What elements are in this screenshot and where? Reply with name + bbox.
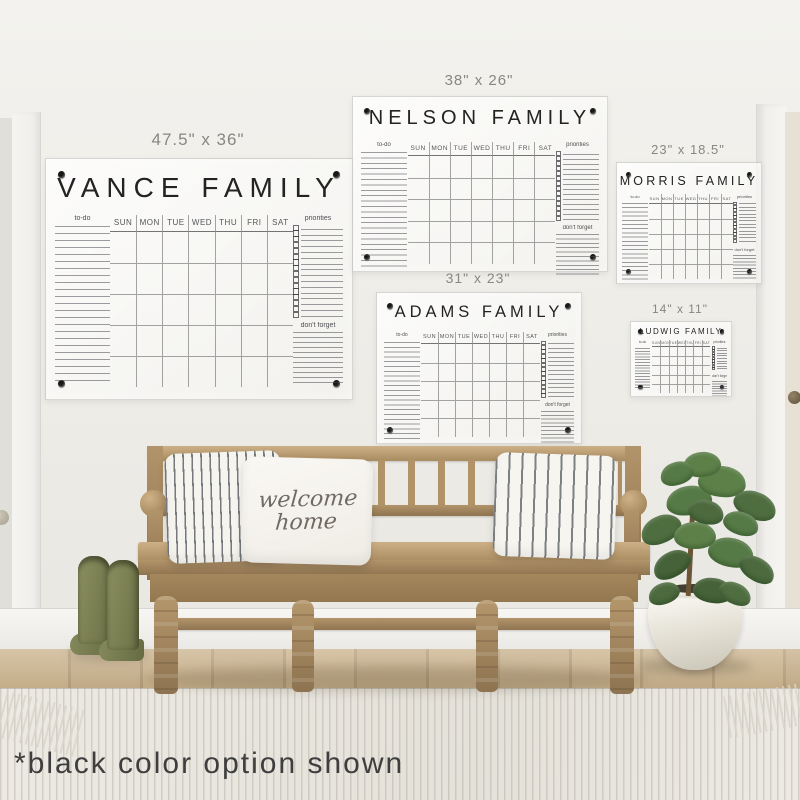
checklist-line xyxy=(301,304,343,305)
date-cell xyxy=(660,365,668,374)
date-cell xyxy=(513,178,534,200)
day-label: MON xyxy=(660,340,668,347)
date-cell xyxy=(492,178,513,200)
date-cell xyxy=(489,418,506,437)
date-cell xyxy=(450,199,471,221)
checkbox-icon xyxy=(733,239,737,243)
checklist-line xyxy=(548,383,574,384)
day-label: FRI xyxy=(241,215,267,232)
date-cell xyxy=(506,418,523,437)
calendar-title: MORRIS FAMILY xyxy=(617,174,761,188)
date-cell xyxy=(408,221,429,243)
date-cell xyxy=(450,221,471,243)
day-label: WED xyxy=(677,340,685,347)
checklist-line xyxy=(563,179,599,180)
date-cell xyxy=(693,347,701,356)
checklist-line xyxy=(548,387,574,388)
day-label: FRI xyxy=(506,332,523,344)
checklist-line xyxy=(548,365,574,366)
date-cell xyxy=(685,356,693,365)
date-cell xyxy=(162,356,188,387)
date-cell xyxy=(660,375,668,384)
dont-forget-label: don't forget xyxy=(712,374,727,378)
acrylic-panel: NELSON FAMILYto-doSUNMONTUEWEDTHUFRISATp… xyxy=(352,96,608,272)
date-cell xyxy=(697,234,709,249)
boot-left-shaft xyxy=(78,556,110,644)
checklist-line xyxy=(301,310,343,311)
checklist-line xyxy=(563,159,599,160)
date-cell xyxy=(429,221,450,243)
day-label: TUE xyxy=(673,194,685,204)
todo-lines xyxy=(635,348,650,390)
checklist-line xyxy=(563,204,599,205)
date-cells xyxy=(652,347,710,393)
day-label: SAT xyxy=(702,340,710,347)
checklist-line xyxy=(739,210,756,211)
todo-column: to-do xyxy=(635,340,650,396)
date-cell xyxy=(652,356,660,365)
date-cell xyxy=(649,264,661,279)
date-cell xyxy=(489,400,506,419)
todo-column: to-do xyxy=(361,142,407,278)
checklist-line xyxy=(548,348,574,349)
date-cell xyxy=(513,156,534,178)
date-cell xyxy=(438,400,455,419)
checklist-line xyxy=(739,227,756,228)
month-grid: SUNMONTUEWEDTHUFRISAT xyxy=(649,194,733,283)
checklist-line xyxy=(548,392,574,393)
date-cell xyxy=(523,344,540,363)
date-cell xyxy=(673,204,685,219)
date-cell xyxy=(649,234,661,249)
date-cell xyxy=(702,356,710,365)
date-cell xyxy=(506,400,523,419)
checklist-line xyxy=(717,350,727,351)
date-cell xyxy=(110,232,136,263)
checklist-line xyxy=(548,374,574,375)
todo-lines xyxy=(55,226,110,387)
checkbox-icon xyxy=(556,216,561,221)
date-cell xyxy=(513,199,534,221)
todo-column: to-do xyxy=(384,332,420,445)
acrylic-panel: VANCE FAMILYto-doSUNMONTUEWEDTHUFRISATpr… xyxy=(45,158,353,400)
date-cell xyxy=(162,294,188,325)
day-label: THU xyxy=(492,142,513,156)
date-cell xyxy=(489,363,506,382)
date-cell xyxy=(669,347,677,356)
checklist-line xyxy=(548,357,574,358)
priorities-column: prioritiesdon't forget xyxy=(712,340,727,396)
date-cell xyxy=(267,294,293,325)
date-cell xyxy=(215,356,241,387)
day-label: FRI xyxy=(709,194,721,204)
date-cell xyxy=(429,242,450,264)
day-header-row: SUNMONTUEWEDTHUFRISAT xyxy=(652,340,710,347)
day-label: SAT xyxy=(523,332,540,344)
checklist-line xyxy=(563,199,599,200)
date-cell xyxy=(429,178,450,200)
date-cell xyxy=(110,263,136,294)
date-cell xyxy=(523,418,540,437)
date-cell xyxy=(136,232,162,263)
pillow-text-line1: welcome xyxy=(258,487,359,513)
checklist-line xyxy=(301,264,343,265)
date-cell xyxy=(421,363,438,382)
date-cell xyxy=(267,356,293,387)
calendar-content: to-doSUNMONTUEWEDTHUFRISATprioritiesdon'… xyxy=(384,332,574,445)
date-cell xyxy=(450,178,471,200)
date-cell xyxy=(702,375,710,384)
date-cell xyxy=(523,381,540,400)
date-cell xyxy=(702,384,710,393)
date-cell xyxy=(267,263,293,294)
bench-leg xyxy=(292,600,314,692)
checklist-line xyxy=(563,214,599,215)
checklist-line xyxy=(563,164,599,165)
checklist-line xyxy=(301,269,343,270)
checklist-line xyxy=(717,366,727,367)
calendar-size-label: 31" x 23" xyxy=(376,270,580,286)
priorities-label: priorities xyxy=(556,142,599,148)
day-label: TUE xyxy=(450,142,471,156)
date-cell xyxy=(697,249,709,264)
checklist-row xyxy=(712,368,727,371)
date-cell xyxy=(673,249,685,264)
date-cell xyxy=(649,219,661,234)
pillow-text-line2: home xyxy=(274,510,337,535)
date-cell xyxy=(721,249,733,264)
day-label: THU xyxy=(489,332,506,344)
day-label: FRI xyxy=(693,340,701,347)
date-cell xyxy=(661,249,673,264)
checklist-line xyxy=(301,246,343,247)
date-cell xyxy=(438,344,455,363)
checklist-line xyxy=(739,231,756,232)
date-cell xyxy=(188,356,214,387)
date-cell xyxy=(110,294,136,325)
checklist-line xyxy=(563,169,599,170)
date-cell xyxy=(721,204,733,219)
date-cell xyxy=(685,264,697,279)
dont-forget-lines xyxy=(733,255,756,281)
date-cell xyxy=(534,178,555,200)
month-grid: SUNMONTUEWEDTHUFRISAT xyxy=(421,332,540,445)
day-label: SAT xyxy=(721,194,733,204)
date-cell xyxy=(669,356,677,365)
day-label: MON xyxy=(661,194,673,204)
checklist-line xyxy=(548,361,574,362)
checklist-line xyxy=(548,370,574,371)
date-cell xyxy=(709,219,721,234)
date-cell xyxy=(267,325,293,356)
checklist-line xyxy=(301,298,343,299)
date-cell xyxy=(523,400,540,419)
date-cell xyxy=(697,219,709,234)
date-cell xyxy=(669,365,677,374)
checklist-line xyxy=(548,379,574,380)
date-cell xyxy=(506,381,523,400)
todo-label: to-do xyxy=(361,142,407,148)
day-label: THU xyxy=(215,215,241,232)
checkbox-icon xyxy=(541,393,546,398)
date-cell xyxy=(709,204,721,219)
date-cell xyxy=(472,344,489,363)
todo-label: to-do xyxy=(635,340,650,344)
checklist-line xyxy=(739,241,756,242)
checklist-line xyxy=(301,287,343,288)
date-cell xyxy=(450,156,471,178)
date-cell xyxy=(421,418,438,437)
date-cell xyxy=(472,363,489,382)
priorities-column: prioritiesdon't forget xyxy=(293,215,343,387)
calendar-title: NELSON FAMILY xyxy=(353,107,607,130)
date-cell xyxy=(215,232,241,263)
date-cell xyxy=(669,375,677,384)
day-header-row: SUNMONTUEWEDTHUFRISAT xyxy=(408,142,556,156)
day-label: SUN xyxy=(649,194,661,204)
date-cell xyxy=(685,384,693,393)
calendar-nelson: 38" x 26"NELSON FAMILYto-doSUNMONTUEWEDT… xyxy=(352,96,606,272)
date-cell xyxy=(162,325,188,356)
date-cell xyxy=(429,156,450,178)
day-label: FRI xyxy=(513,142,534,156)
checklist-line xyxy=(739,224,756,225)
date-cell xyxy=(421,400,438,419)
date-cell xyxy=(471,221,492,243)
date-cells xyxy=(408,156,556,264)
checklist-line xyxy=(548,352,574,353)
date-cell xyxy=(702,365,710,374)
date-cell xyxy=(188,232,214,263)
date-cell xyxy=(677,375,685,384)
calendar-content: to-doSUNMONTUEWEDTHUFRISATprioritiesdon'… xyxy=(635,340,727,396)
date-cell xyxy=(506,344,523,363)
date-cell xyxy=(455,381,472,400)
bench-apron xyxy=(150,574,638,602)
date-cell xyxy=(267,232,293,263)
date-cell xyxy=(534,221,555,243)
date-cell xyxy=(241,356,267,387)
date-cells xyxy=(110,232,293,387)
date-cell xyxy=(215,294,241,325)
day-label: THU xyxy=(697,194,709,204)
priorities-label: priorities xyxy=(541,332,574,338)
date-cell xyxy=(455,363,472,382)
calendar-size-label: 38" x 26" xyxy=(352,72,606,89)
priorities-label: priorities xyxy=(733,194,756,199)
date-cell xyxy=(438,381,455,400)
bench-shadow xyxy=(142,666,648,692)
checklist-row xyxy=(541,394,574,398)
calendar-title: ADAMS FAMILY xyxy=(377,303,581,322)
date-cell xyxy=(188,263,214,294)
checklist-line xyxy=(739,220,756,221)
date-cell xyxy=(136,325,162,356)
date-cell xyxy=(421,381,438,400)
date-cell xyxy=(110,325,136,356)
checklist-line xyxy=(717,363,727,364)
checkbox-icon xyxy=(293,312,299,318)
date-cell xyxy=(110,356,136,387)
date-cell xyxy=(408,242,429,264)
date-cell xyxy=(534,199,555,221)
day-label: TUE xyxy=(669,340,677,347)
todo-lines xyxy=(384,342,420,443)
dont-forget-lines xyxy=(293,332,343,387)
striped-pillow-right xyxy=(492,452,618,560)
calendar-size-label: 47.5" x 36" xyxy=(45,130,351,150)
todo-lines xyxy=(622,203,648,283)
priorities-checklist xyxy=(712,347,727,370)
checklist-row xyxy=(556,216,599,221)
day-label: SUN xyxy=(421,332,438,344)
dont-forget-lines xyxy=(541,411,574,445)
date-cell xyxy=(408,156,429,178)
date-cell xyxy=(455,344,472,363)
checklist-row xyxy=(293,312,343,318)
date-cell xyxy=(677,384,685,393)
date-cell xyxy=(438,418,455,437)
date-cell xyxy=(685,249,697,264)
day-header-row: SUNMONTUEWEDTHUFRISAT xyxy=(649,194,733,204)
checklist-line xyxy=(717,348,727,349)
calendar-size-label: 23" x 18.5" xyxy=(616,142,760,157)
day-label: SUN xyxy=(408,142,429,156)
date-cell xyxy=(709,234,721,249)
date-cell xyxy=(673,234,685,249)
checklist-line xyxy=(717,358,727,359)
date-cells xyxy=(649,204,733,279)
calendar-content: to-doSUNMONTUEWEDTHUFRISATprioritiesdon'… xyxy=(361,142,599,278)
date-cell xyxy=(685,219,697,234)
date-cell xyxy=(492,221,513,243)
date-cell xyxy=(438,363,455,382)
day-header-row: SUNMONTUEWEDTHUFRISAT xyxy=(110,215,293,232)
day-label: WED xyxy=(188,215,214,232)
month-grid: SUNMONTUEWEDTHUFRISAT xyxy=(110,215,293,387)
date-cell xyxy=(709,264,721,279)
day-label: WED xyxy=(471,142,492,156)
checklist-line xyxy=(301,240,343,241)
date-cell xyxy=(685,375,693,384)
date-cell xyxy=(162,263,188,294)
date-cell xyxy=(450,242,471,264)
date-cell xyxy=(677,365,685,374)
checklist-line xyxy=(563,219,599,220)
checklist-line xyxy=(739,217,756,218)
priorities-checklist xyxy=(733,202,756,243)
day-label: SUN xyxy=(652,340,660,347)
date-cell xyxy=(471,178,492,200)
date-cell xyxy=(685,234,697,249)
todo-column: to-do xyxy=(622,194,648,283)
day-label: MON xyxy=(438,332,455,344)
checklist-line xyxy=(563,184,599,185)
bench-leg xyxy=(610,596,634,694)
todo-lines xyxy=(361,152,407,271)
dont-forget-label: don't forget xyxy=(293,322,343,329)
date-cell xyxy=(523,363,540,382)
date-cell xyxy=(472,400,489,419)
day-label: SAT xyxy=(267,215,293,232)
date-cell xyxy=(421,344,438,363)
date-cell xyxy=(685,204,697,219)
month-grid: SUNMONTUEWEDTHUFRISAT xyxy=(652,340,710,396)
calendar-title: LUDWIG FAMILY xyxy=(631,327,731,336)
date-cell xyxy=(492,156,513,178)
checklist-line xyxy=(739,234,756,235)
welcome-home-pillow: welcome home xyxy=(241,456,374,565)
product-photo-scene: 47.5" x 36"VANCE FAMILYto-doSUNMONTUEWED… xyxy=(0,0,800,800)
day-label: WED xyxy=(472,332,489,344)
date-cell xyxy=(506,363,523,382)
checklist-line xyxy=(301,275,343,276)
date-cell xyxy=(534,242,555,264)
date-cell xyxy=(693,375,701,384)
date-cell xyxy=(489,344,506,363)
date-cell xyxy=(652,375,660,384)
date-cell xyxy=(660,347,668,356)
acrylic-panel: LUDWIG FAMILYto-doSUNMONTUEWEDTHUFRISATp… xyxy=(630,321,732,397)
date-cell xyxy=(408,199,429,221)
checklist-line xyxy=(739,203,756,204)
date-cell xyxy=(492,242,513,264)
checklist-line xyxy=(563,154,599,155)
dont-forget-label: don't forget xyxy=(541,402,574,408)
date-cell xyxy=(693,365,701,374)
day-label: WED xyxy=(685,194,697,204)
dont-forget-label: don't forget xyxy=(733,247,756,252)
day-label: MON xyxy=(429,142,450,156)
day-label: MON xyxy=(136,215,162,232)
date-cell xyxy=(673,264,685,279)
day-label: THU xyxy=(685,340,693,347)
checklist-line xyxy=(563,174,599,175)
date-cell xyxy=(241,325,267,356)
date-cell xyxy=(652,384,660,393)
checklist-line xyxy=(717,361,727,362)
month-grid: SUNMONTUEWEDTHUFRISAT xyxy=(408,142,556,278)
date-cell xyxy=(513,221,534,243)
date-cell xyxy=(455,418,472,437)
priorities-label: priorities xyxy=(712,340,727,344)
date-cell xyxy=(136,356,162,387)
date-cell xyxy=(136,294,162,325)
date-cell xyxy=(661,219,673,234)
date-cell xyxy=(677,356,685,365)
bench-leg xyxy=(476,600,498,692)
priorities-label: priorities xyxy=(293,215,343,222)
priorities-checklist xyxy=(541,341,574,398)
calendar-morris: 23" x 18.5"MORRIS FAMILYto-doSUNMONTUEWE… xyxy=(616,162,760,284)
date-cell xyxy=(215,325,241,356)
date-cells xyxy=(421,344,540,437)
checklist-line xyxy=(548,396,574,397)
date-cell xyxy=(471,156,492,178)
date-cell xyxy=(697,264,709,279)
priorities-column: prioritiesdon't forget xyxy=(733,194,756,283)
date-cell xyxy=(661,204,673,219)
checklist-row xyxy=(733,239,756,242)
date-cell xyxy=(693,384,701,393)
date-cell xyxy=(472,381,489,400)
date-cell xyxy=(709,249,721,264)
calendar-ludwig: 14" x 11"LUDWIG FAMILYto-doSUNMONTUEWEDT… xyxy=(630,321,730,397)
calendar-vance: 47.5" x 36"VANCE FAMILYto-doSUNMONTUEWED… xyxy=(45,158,351,400)
date-cell xyxy=(136,263,162,294)
date-cell xyxy=(660,356,668,365)
calendar-content: to-doSUNMONTUEWEDTHUFRISATprioritiesdon'… xyxy=(55,215,343,387)
